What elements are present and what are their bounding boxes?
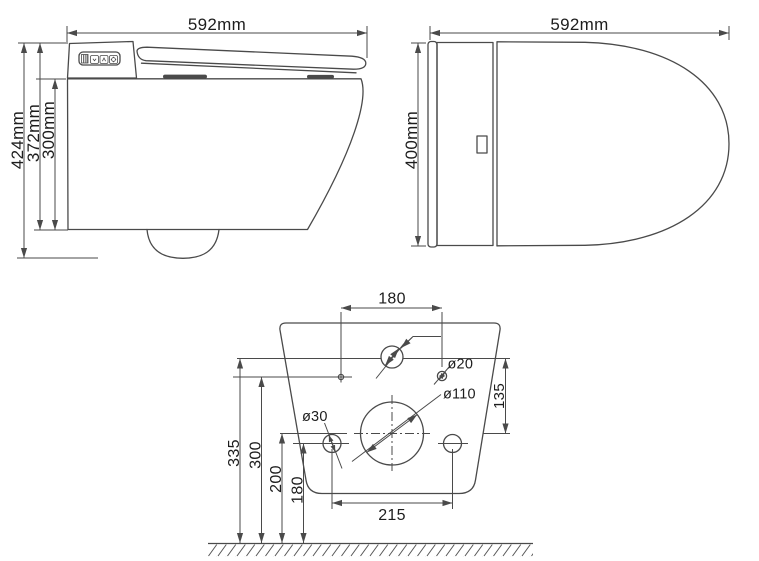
wall-template: ø20 ø110 ø30	[208, 291, 533, 558]
control-panel	[79, 52, 120, 65]
toilet-side-outline	[68, 42, 366, 259]
top-view: 592mm 400mm	[402, 15, 729, 247]
height-180-label: 180	[290, 476, 307, 504]
cistern-outline	[68, 42, 137, 79]
side-height-body-label: 300mm	[39, 101, 58, 159]
wall-bracket-strip	[428, 42, 437, 248]
top-length-label: 592mm	[550, 15, 608, 34]
dia-20-label: ø20	[448, 357, 474, 373]
span-top-label: 180	[378, 291, 406, 308]
gear-icon	[112, 58, 116, 62]
top-width-label: 400mm	[402, 111, 421, 169]
lid-outline	[137, 47, 366, 69]
lid-top-outline	[497, 42, 729, 246]
seat-bumper-right	[307, 75, 334, 79]
dia-110-label: ø110	[443, 387, 476, 403]
height-300-label: 300	[248, 441, 265, 469]
button-down	[91, 56, 99, 64]
button-up	[100, 56, 108, 64]
height-335-label: 335	[226, 439, 243, 467]
arrow-up-icon	[102, 58, 105, 61]
bowl-body-outline	[68, 79, 363, 230]
offset-135-label: 135	[491, 383, 508, 409]
trap-outline	[147, 230, 219, 259]
top-view-dimension-lines	[411, 26, 729, 246]
seat-bumper-left	[163, 75, 207, 79]
button-settings	[110, 56, 118, 64]
sensor-window	[477, 136, 487, 153]
floor	[208, 544, 533, 558]
side-width-label: 592mm	[188, 15, 246, 34]
side-view: 592mm 424mm 372mm 300mm	[8, 15, 367, 258]
cistern-top-outline	[437, 43, 493, 246]
dia-30-label: ø30	[302, 409, 328, 425]
side-view-dimension-lines	[17, 26, 367, 258]
chevron-down-icon	[93, 59, 96, 61]
technical-drawing: 592mm 424mm 372mm 300mm	[0, 0, 759, 561]
toilet-top-outline	[428, 42, 729, 248]
span-bottom-label: 215	[378, 507, 406, 524]
floor-hatching	[208, 545, 533, 558]
technical-drawing-canvas: 592mm 424mm 372mm 300mm	[0, 0, 759, 561]
datum-marker	[336, 372, 347, 383]
height-200-label: 200	[268, 465, 285, 493]
